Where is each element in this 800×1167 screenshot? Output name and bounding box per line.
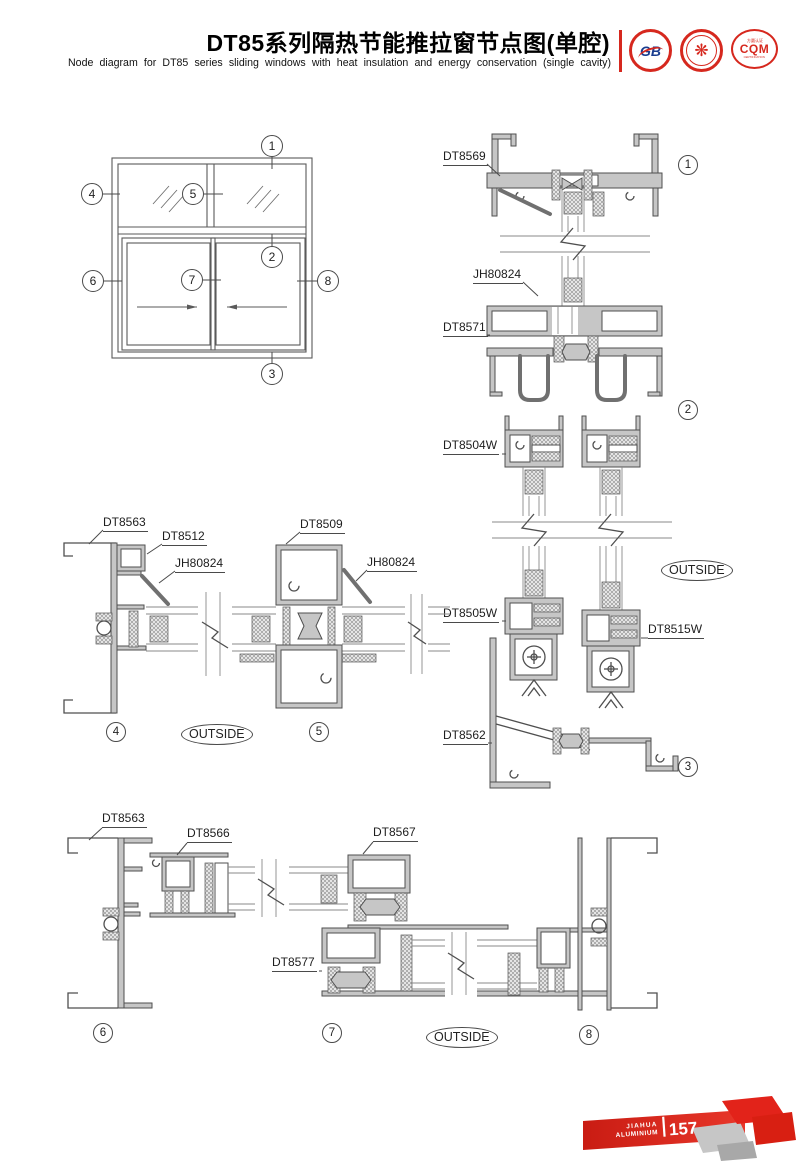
part-label-dt8515w: DT8515W: [648, 623, 704, 639]
part-label-dt8512: DT8512: [162, 530, 207, 546]
catalog-page: DT85系列隔热节能推拉窗节点图(单腔) Node diagram for DT…: [0, 0, 800, 1167]
footer-banner-svg: JIAHUA ALUMINIUM 157: [580, 1095, 800, 1167]
header-divider: [619, 30, 622, 72]
slide-direction-arrows: [137, 305, 287, 310]
sash-top-rails: [505, 416, 640, 467]
horizontal-section-top-svg: [60, 510, 450, 755]
section-callout-6: 6: [93, 1023, 113, 1043]
break-symbol-top: [495, 228, 655, 260]
jamb-profile: [64, 543, 146, 713]
break-symbol-upper: [255, 857, 289, 919]
section-callout-3: 3: [678, 757, 698, 777]
cqm-logo: 方圆认证 CQM CERTIFICATION: [731, 29, 778, 69]
corner-gasket-left: [142, 576, 168, 604]
break-symbol-right: [405, 592, 428, 676]
elevation-callout-3: 3: [261, 363, 283, 385]
section-callout-7: 7: [322, 1023, 342, 1043]
section-callout-5: 5: [309, 722, 329, 742]
part-label-dt8567: DT8567: [373, 826, 418, 842]
elevation-svg: [75, 128, 345, 388]
cqm-logo-text: CQM: [740, 43, 770, 56]
part-label-dt8505w: DT8505W: [443, 607, 499, 623]
part-label-dt8569: DT8569: [443, 150, 488, 166]
horizontal-section-bottom-detail: DT8563 DT8566 DT8567 DT8577 6 7 OUTSIDE …: [55, 795, 675, 1060]
page-subtitle: Node diagram for DT85 series sliding win…: [68, 57, 611, 69]
section-callout-4: 4: [106, 722, 126, 742]
corner-gasket-right: [344, 570, 370, 602]
footer-red-arrow-2: [752, 1112, 796, 1145]
certification-seal-glyph: ❋: [694, 42, 708, 59]
part-label-dt8566: DT8566: [187, 827, 232, 843]
footer-page-number: 157: [668, 1118, 698, 1139]
elevation-callout-8: 8: [317, 270, 339, 292]
vertical-section-svg: [440, 120, 740, 805]
part-label-dt8563: DT8563: [102, 812, 147, 828]
break-symbol-lower: [445, 930, 477, 998]
cqm-logo-top-text: 方圆认证: [746, 39, 762, 43]
break-symbol-left: [198, 590, 232, 678]
outside-label: OUTSIDE: [426, 1027, 498, 1048]
section-callout-1: 1: [678, 155, 698, 175]
meeting-stile-upper: [348, 855, 410, 921]
gb-logo: GB: [629, 29, 672, 72]
right-jamb-profile: [578, 838, 657, 1010]
part-label-dt8504w: DT8504W: [443, 439, 499, 455]
break-symbol-middle: [490, 514, 675, 546]
page-title: DT85系列隔热节能推拉窗节点图(单腔): [206, 24, 610, 58]
elevation-callout-6: 6: [82, 270, 104, 292]
section-callout-8: 8: [579, 1025, 599, 1045]
right-frame-profile: [537, 928, 608, 992]
elevation-callout-1: 1: [261, 135, 283, 157]
left-jamb-profile: [68, 838, 152, 1008]
elevation-callout-4: 4: [81, 183, 103, 205]
certification-seal-ring: ❋: [686, 35, 717, 66]
page-footer: JIAHUA ALUMINIUM 157: [580, 1095, 800, 1167]
sash-bottom-rails: [505, 598, 640, 708]
outside-label: OUTSIDE: [661, 560, 733, 581]
part-label-dt8563: DT8563: [103, 516, 148, 532]
horizontal-section-top-detail: DT8563 DT8512 JH80824 DT8509 JH80824 4 O…: [60, 510, 450, 755]
cqm-logo-bottom-text: CERTIFICATION: [744, 56, 765, 59]
vertical-section-detail: DT8569 JH80824 DT8571 DT8504W DT8505W DT…: [440, 120, 740, 805]
elevation-callout-5: 5: [182, 183, 204, 205]
certification-seal-icon: ❋: [680, 29, 723, 72]
outside-label: OUTSIDE: [181, 724, 253, 745]
window-elevation-diagram: 1 4 5 2 6 7 8 3: [75, 128, 345, 388]
horizontal-section-bottom-svg: [55, 795, 675, 1060]
part-label-jh80824: JH80824: [473, 268, 523, 284]
elevation-callout-2: 2: [261, 246, 283, 268]
mullion-profile: [276, 545, 342, 708]
part-label-dt8509: DT8509: [300, 518, 345, 534]
part-label-dt8571: DT8571: [443, 321, 488, 337]
frame-track-profile: [150, 853, 235, 917]
certification-logos: GB ❋ 方圆认证 CQM CERTIFICATION: [629, 29, 778, 72]
part-label-jh80824-right: JH80824: [367, 556, 417, 572]
part-label-dt8577: DT8577: [272, 956, 317, 972]
glass-hatch-marks: [153, 186, 279, 212]
elevation-callout-7: 7: [181, 269, 203, 291]
middle-rail-profile: [487, 306, 662, 400]
part-label-jh80824-left: JH80824: [175, 557, 225, 573]
section-callout-2: 2: [678, 400, 698, 420]
